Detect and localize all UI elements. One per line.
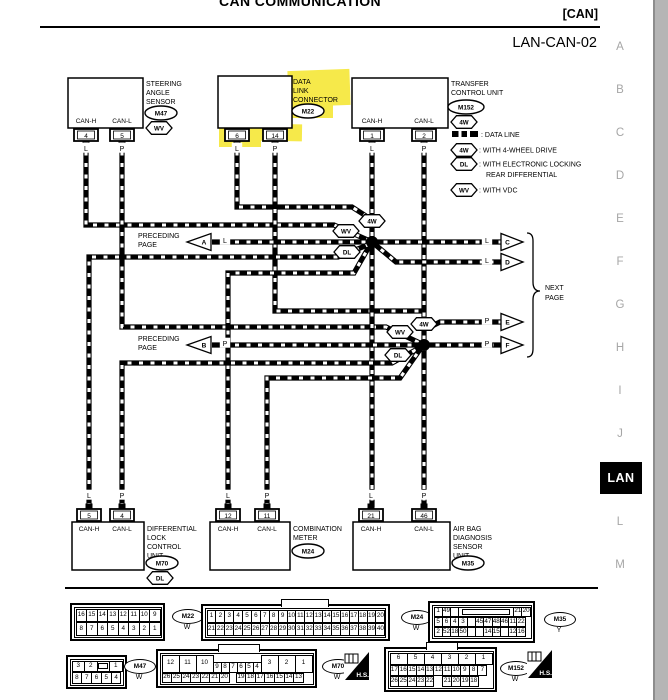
page-arrow-left [187,337,211,354]
legend-label: : WITH 4-WHEEL DRIVE [479,148,557,155]
component-name: TRANSFER [451,81,489,88]
component-name: LINK [293,88,309,95]
component-name: SENSOR [146,99,176,106]
side-index-letter: C [608,127,632,139]
wire-color-label: P [120,146,125,153]
wire-color-label: L [223,238,227,245]
connector-pin-cell [97,661,111,673]
connector-pin-cell: 4 [424,653,442,665]
connector-pin-cell: 2 [278,655,296,673]
hs-logo: H.S. [527,649,553,684]
wire-color-label: L [226,493,230,500]
connector-slot [98,663,108,669]
wire-difflock-canl [122,347,421,507]
connector-pin-cell: 1 [109,661,123,673]
page-arrow-letter: B [202,343,207,350]
option-flag-label: WV [395,329,406,336]
option-flag-label: WV [459,187,470,194]
component-name: CONTROL UNIT [451,90,504,97]
legend-label: : DATA LINE [481,132,520,139]
option-flag-label: 4W [367,218,376,225]
pin-label: CAN-H [362,118,383,125]
connector-view-M70: 1211109876543212625242322212019181716151… [156,649,317,688]
connector-view-grid: 1234567891011121314151617181920212223242… [205,608,387,638]
connector-color-label: Y [544,627,574,634]
next-page-label: NEXT [545,285,564,292]
connector-pin-row: 1716151413121110987 [390,665,492,676]
legend-label: REAR DIFFERENTIAL [486,172,557,179]
connector-ref-label: M152 [458,104,474,111]
connector-pin-row: 262524232221201918 [390,676,492,687]
component-name: DATA [293,79,311,86]
preceding-page-label: PAGE [138,242,157,249]
connector-ref: M22 [172,609,204,624]
component-box [218,76,292,128]
wire-pattern-difflock-canl [122,347,421,507]
connector-pin-cell: 10 [196,655,214,673]
connector-pin-cell: 22 [516,617,525,627]
connector-pin-row: 87654 [72,672,122,684]
component-name: COMBINATION [293,526,342,533]
pin-number: 11 [264,513,271,520]
hs-logo-graphic: H.S. [344,651,370,681]
connector-pin-cell: 18 [469,676,479,687]
component-name: AIR BAG [453,526,481,533]
side-index-letter: M [608,559,632,571]
option-flag-label: WV [154,125,165,132]
side-index-letter: G [608,299,632,311]
option-flag-label: DL [460,161,468,168]
page-arrow-right [501,337,523,354]
wire-color-label: P [422,146,427,153]
option-flag-label: WV [341,228,352,235]
pin-label: CAN-H [218,526,239,533]
side-index-active-tab: LAN [600,462,642,494]
connector-pin-cell: 7 [477,665,487,676]
component-name: SENSOR [453,544,483,551]
wire-color-label: L [485,258,489,265]
connector-view-grid: 6543211716151413121110987262524232221201… [388,651,494,689]
wire-color-label: P [485,318,490,325]
wire-color-label: P [120,493,125,500]
wire-nub [212,240,217,245]
section-divider [65,587,598,589]
wire-color-label: P [265,493,270,500]
svg-text:H.S.: H.S. [356,672,369,679]
connector-ref-label: M70 [156,560,169,567]
wire-pattern-junction1-to-d [372,242,501,262]
hs-logo: H.S. [344,651,370,686]
connector-color-label: W [172,624,202,631]
connector-pin-cell: 16 [516,627,525,637]
wire-stub [86,504,92,509]
connector-pin-cell [458,607,514,617]
connector-view-M47: 32187654 [66,655,127,689]
wire-nub [494,320,499,325]
connector-ref: M47 [124,659,156,674]
hs-logo-graphic: H.S. [527,649,553,679]
connector-pin-row: 252185014151216 [434,627,530,637]
connector-pin-cell: 4 [111,672,122,684]
legend-label: : WITH VDC [479,188,518,195]
wire-stub [421,504,427,509]
connector-color-label: W [401,625,431,632]
pin-number: 4 [120,513,124,520]
wiring-diagram: 4WWVDL4WWVDLSTEERINGANGLESENSORM47WVCAN-… [0,0,605,600]
connector-pin-cell: 3 [441,653,459,665]
connector-keying-tab [281,599,329,607]
side-index-letter: B [608,84,632,96]
connector-pin-cell: 1 [295,655,313,673]
connector-pin-cell: 20 [375,610,385,623]
option-flag-label: DL [156,575,164,582]
connector-slot [462,609,510,615]
connector-keying-tab [426,642,458,650]
junction-dot-2 [418,339,430,351]
pin-number: 21 [367,513,375,520]
option-flag-label: DL [343,249,351,256]
page-arrow-letter: E [505,320,510,327]
preceding-page-label: PAGE [138,345,157,352]
connector-view-grid: 16151413121110987654321 [74,607,162,638]
side-index-letter: L [608,516,632,528]
option-flag-label: DL [394,352,402,359]
pin-label: CAN-H [76,118,97,125]
connector-pin-cell: 1 [475,653,493,665]
connector-pin-cell: 40 [375,623,385,636]
connector-pin-row: 87654321 [76,622,160,636]
side-index-letter: H [608,342,632,354]
connector-view-M24: 1234567891011121314151617181920212223242… [201,604,390,641]
wire-color-label: P [273,146,278,153]
connector-ref-label: M35 [462,560,475,567]
component-name: CONTROL [147,544,181,551]
legend-label: : WITH ELECTRONIC LOCKING [479,162,581,169]
connector-view-M22: 16151413121110987654321 [70,603,165,641]
page-arrow-right [501,314,523,331]
wire-color-label: P [485,341,490,348]
side-index-letter: A [608,41,632,53]
connector-pin-cell: 13 [293,673,304,683]
wire-color-label: L [87,493,91,500]
wire-stub [225,504,231,509]
wire-color-label: P [223,341,228,348]
connector-view-M152: 6543211716151413121110987262524232221201… [384,647,497,692]
connector-ref: M35 [544,612,576,627]
option-flag-label: 4W [459,119,468,126]
next-page-label: PAGE [545,295,564,302]
connector-pin-cell: 9 [149,609,161,623]
option-flag-label: 4W [419,321,428,328]
connector-pin-cell: 1 [149,622,161,636]
connector-pin-cell: 3 [261,655,279,673]
page-arrow-letter: F [506,343,510,350]
connector-view-grid: 32187654 [70,659,124,686]
pin-number: 12 [224,513,232,520]
pin-label: CAN-L [112,118,132,125]
connector-ref-label: M47 [155,110,168,117]
pin-label: CAN-L [257,526,277,533]
wire-nub [494,260,499,265]
connector-pin-cell: 12 [162,655,180,673]
side-index-letter: J [608,428,632,440]
component-name: DIAGNOSIS [453,535,492,542]
connector-ref-label: M22 [302,108,315,115]
connector-pin-cell: 5 [407,653,425,665]
pin-number: 5 [87,513,91,520]
page-arrow-letter: A [202,240,207,247]
connector-view-grid: 14921205643454748461122252185014151216 [432,605,532,640]
component-name: STEERING [146,81,182,88]
wire-color-label: P [422,493,427,500]
wire-stub [264,504,270,509]
connector-view-M35: 14921205643454748461122252185014151216 [428,601,535,643]
pin-label: CAN-H [79,526,100,533]
wire-nub [494,240,499,245]
preceding-page-label: PRECEDING [138,233,180,240]
connector-pin-row: 1492120 [434,607,530,617]
option-flag-label: 4W [459,147,468,154]
svg-text:H.S.: H.S. [539,670,552,677]
connector-pin-cell: 2 [458,653,476,665]
side-index-letter: I [608,385,632,397]
data-line-swatch [452,131,478,137]
pin-label: CAN-L [414,118,434,125]
pin-number: 6 [235,133,239,140]
page-arrow-letter: D [505,260,510,267]
connector-pin-cell: 2 [84,661,98,673]
connector-color-label: W [124,674,154,681]
pin-label: CAN-H [361,526,382,533]
wire-stub [119,504,125,509]
side-index-letter: F [608,256,632,268]
data-line-swatch-gap [467,131,470,137]
wire-nub [212,343,217,348]
connector-pin-row: 161514131211109 [76,609,160,623]
wire-color-label: L [84,146,88,153]
page-arrow-letter: C [505,240,510,247]
junction-dot-1 [366,236,378,248]
connector-pin-row: 2625242322212019181716151413 [162,673,312,683]
connector-pin-row: 2122232425262728293031323334353637383940 [207,623,385,636]
wire-nub [494,343,499,348]
pin-number: 14 [271,133,279,140]
connector-keying-tab [218,644,260,652]
component-name: ANGLE [146,90,170,97]
manual-page: CAN COMMUNICATION [CAN] LAN-CAN-02 4WWVD… [0,0,668,700]
component-name: DIFFERENTIAL [147,526,197,533]
connector-pin-cell: 6 [390,653,408,665]
component-name: LOCK [147,535,166,542]
side-index-letter: E [608,213,632,225]
pin-number: 5 [120,133,124,140]
wire-color-label: L [369,493,373,500]
pin-number: 46 [420,513,428,520]
connector-pin-row: 5643454748461122 [434,617,530,627]
pin-number: 1 [370,133,374,140]
data-line-swatch-gap [459,131,462,137]
connector-pin-cell: 20 [521,607,530,617]
side-index-letter: D [608,170,632,182]
component-name: CONNECTOR [293,97,338,104]
connector-pin-row: 1234567891011121314151617181920 [207,610,385,623]
wire-pattern-combination-canl [267,348,421,507]
wire-color-label: L [370,146,374,153]
connector-color-label: W [500,676,530,683]
preceding-page-label: PRECEDING [138,336,180,343]
connector-view-grid: 1211109876543212625242322212019181716151… [160,653,314,685]
wire-color-label: L [235,146,239,153]
wire-color-label: L [485,238,489,245]
pin-number: 4 [84,133,88,140]
pin-number: 2 [422,133,426,140]
next-page-brace [527,233,540,357]
connector-pin-row: 321 [72,661,122,673]
pin-label: CAN-L [112,526,132,533]
connector-pin-row: 121110987654321 [162,655,312,673]
connector-pin-row: 654321 [390,653,492,665]
pin-label: CAN-L [414,526,434,533]
component-name: METER [293,535,318,542]
page-arrow-left [187,234,211,251]
wire-combination-canl [267,348,421,507]
connector-ref-label: M24 [302,548,315,555]
wire-dlc-canh [237,140,366,216]
connector-pin-cell: 11 [179,655,197,673]
scrollbar-track[interactable] [653,0,668,700]
connector-pin-cell: 3 [72,661,86,673]
wire-stub [368,504,374,509]
